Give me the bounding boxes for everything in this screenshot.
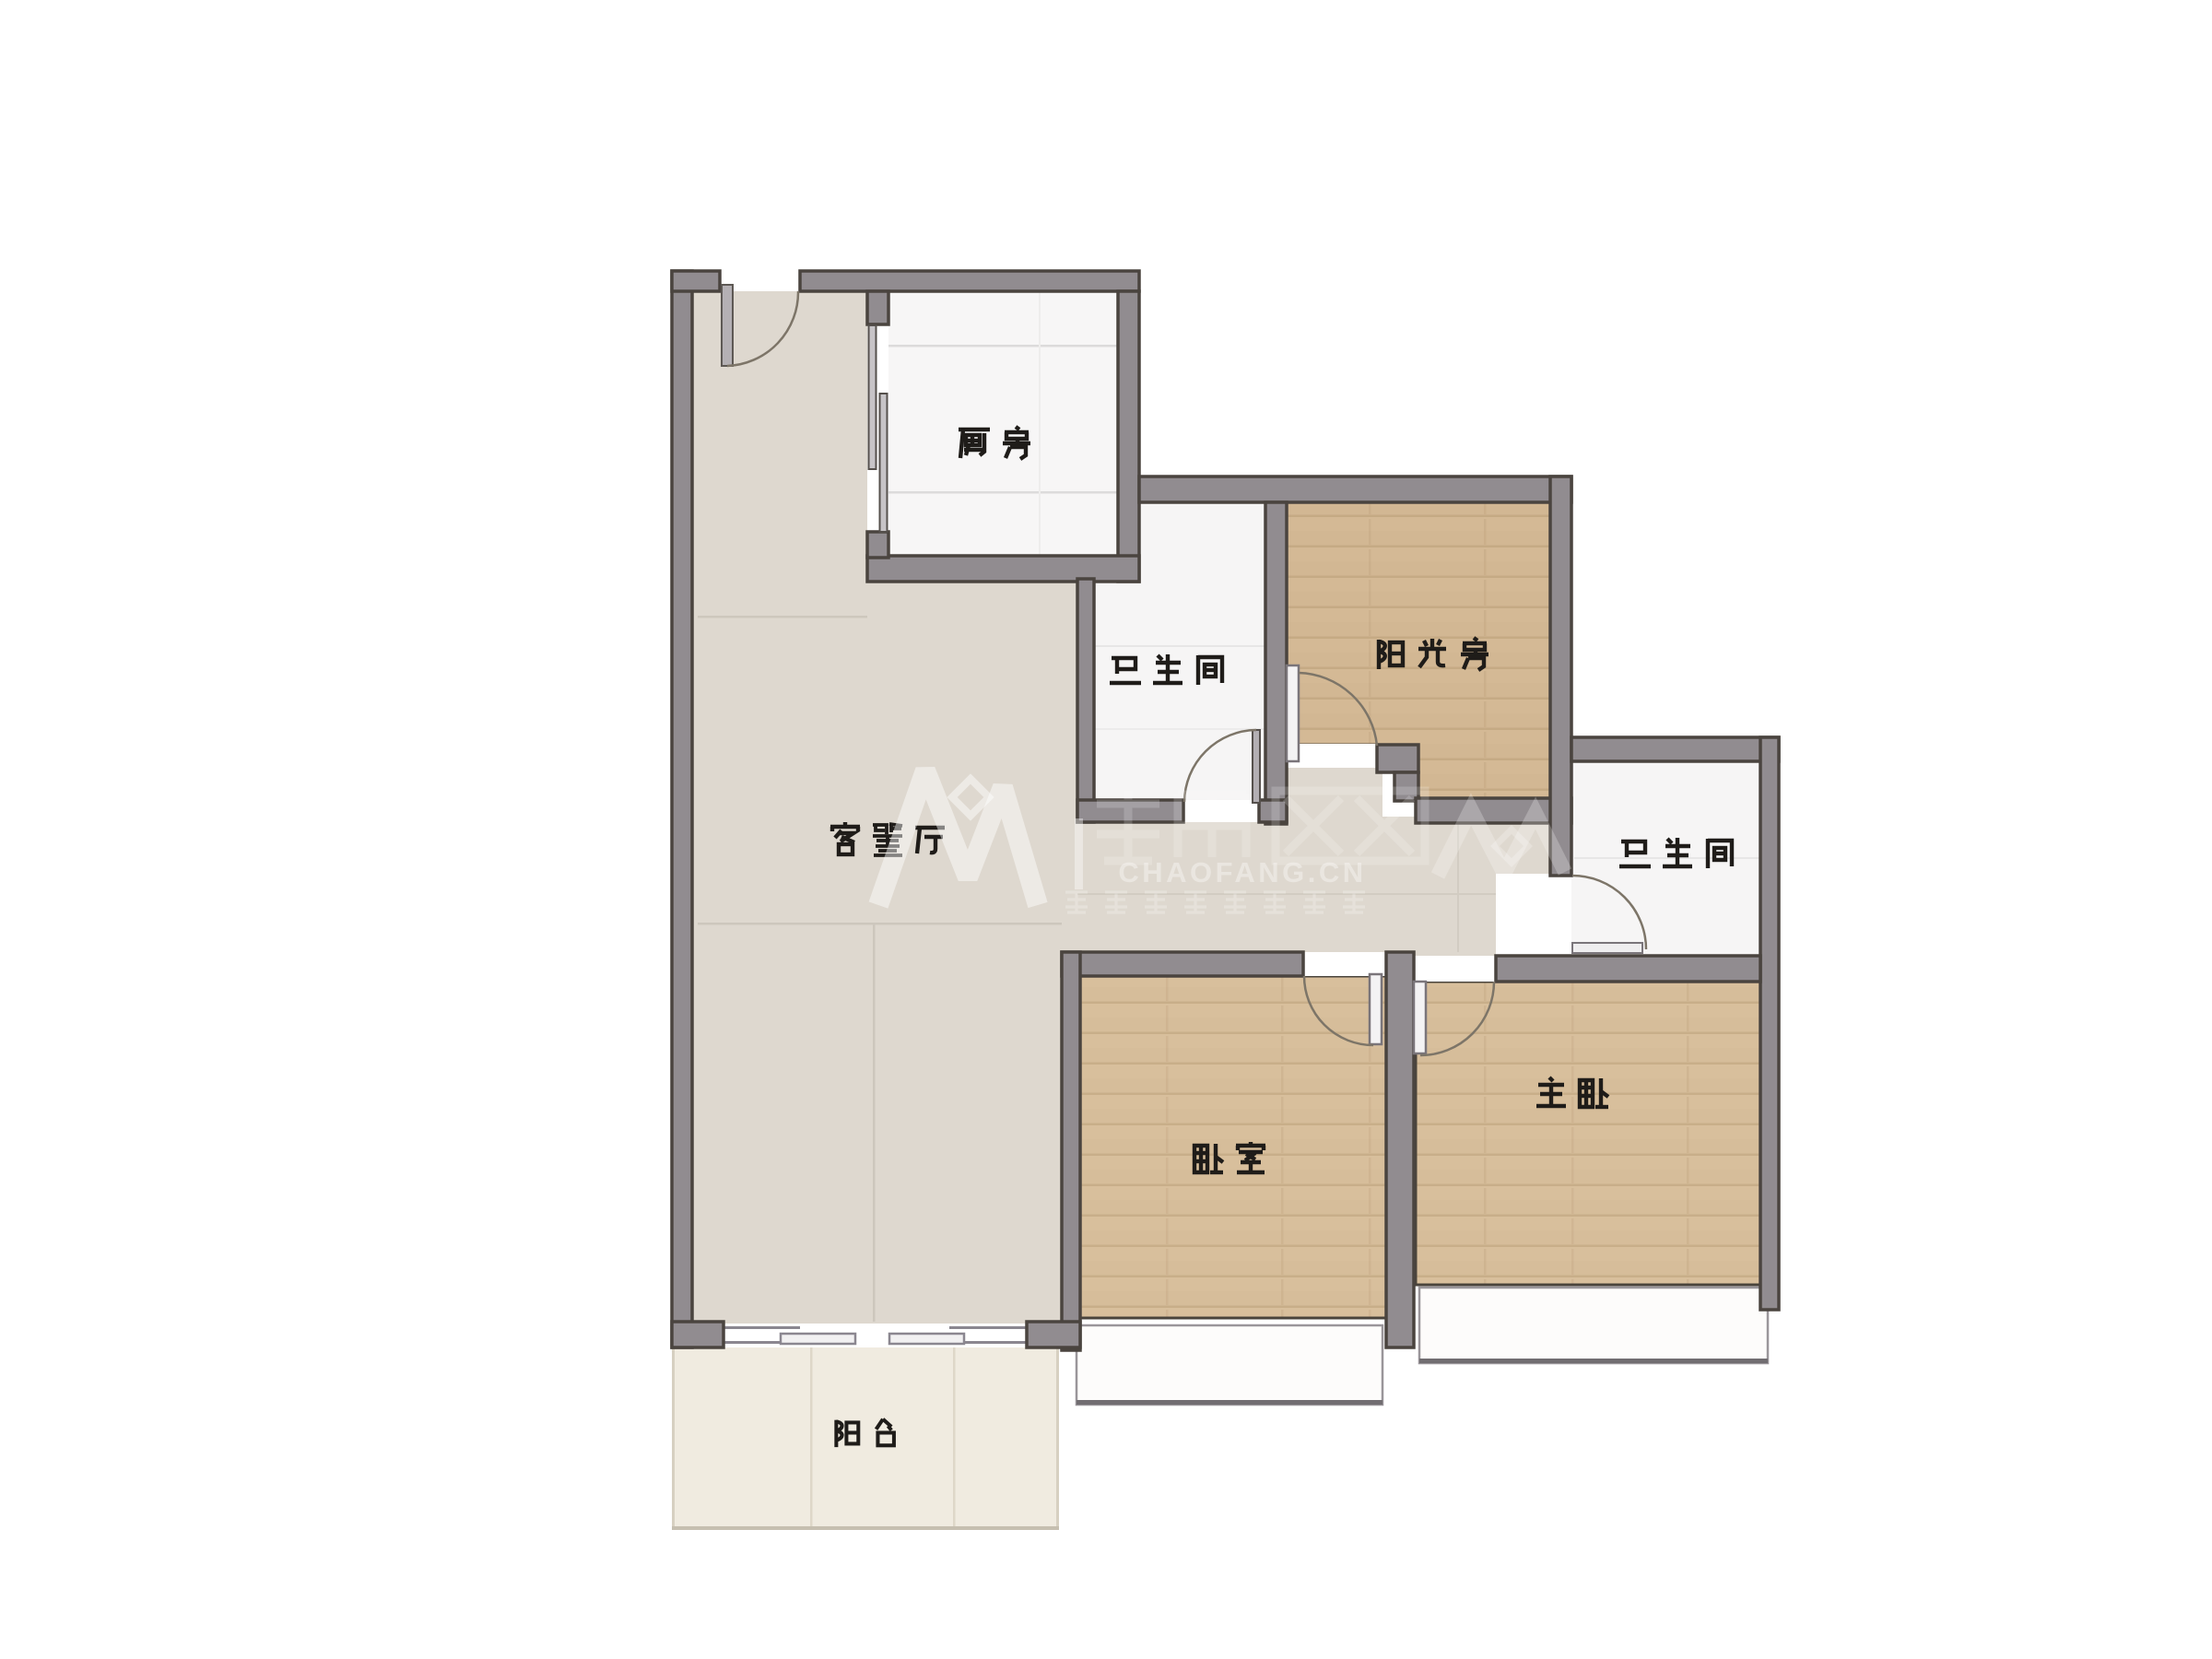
svg-text:CHAOFANG.CN: CHAOFANG.CN (1118, 856, 1366, 888)
